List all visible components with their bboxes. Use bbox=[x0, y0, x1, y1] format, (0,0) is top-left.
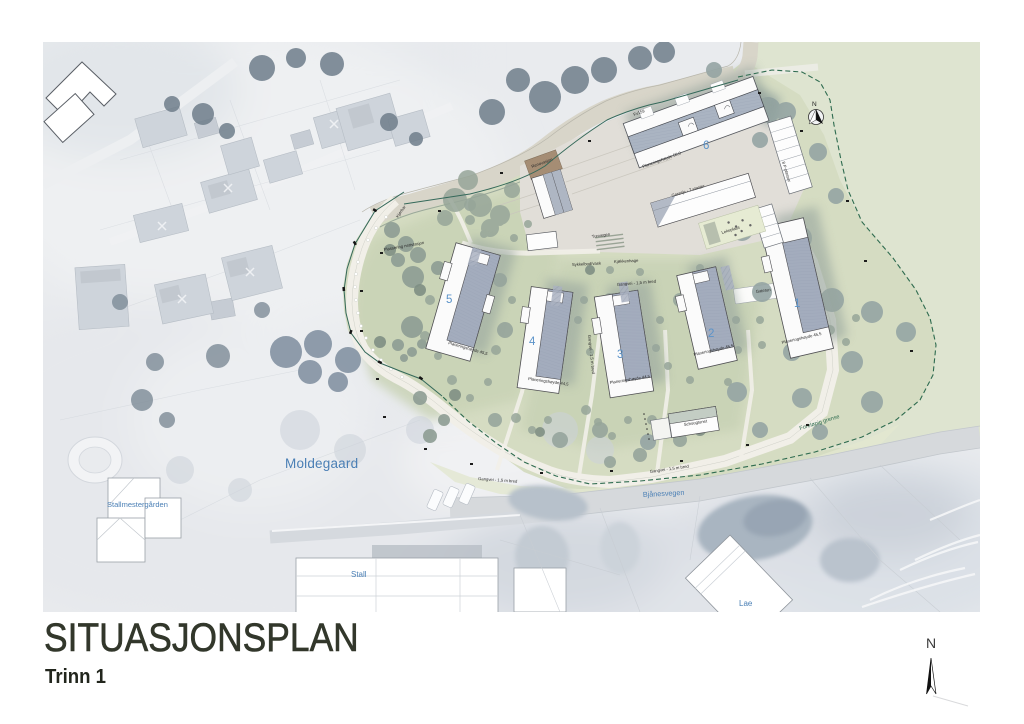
svg-text:Moldegaard: Moldegaard bbox=[285, 456, 358, 471]
svg-text:Stallmestergården: Stallmestergården bbox=[107, 500, 168, 509]
svg-text:1: 1 bbox=[794, 298, 800, 310]
svg-text:N: N bbox=[926, 635, 936, 651]
svg-text:Stall: Stall bbox=[351, 570, 367, 579]
svg-text:N: N bbox=[812, 101, 817, 108]
svg-text:4: 4 bbox=[529, 336, 536, 348]
svg-text:5: 5 bbox=[446, 294, 452, 306]
svg-text:Lae: Lae bbox=[739, 599, 753, 608]
svg-text:6: 6 bbox=[703, 140, 709, 152]
svg-text:2: 2 bbox=[708, 328, 714, 340]
svg-text:3: 3 bbox=[617, 349, 623, 361]
